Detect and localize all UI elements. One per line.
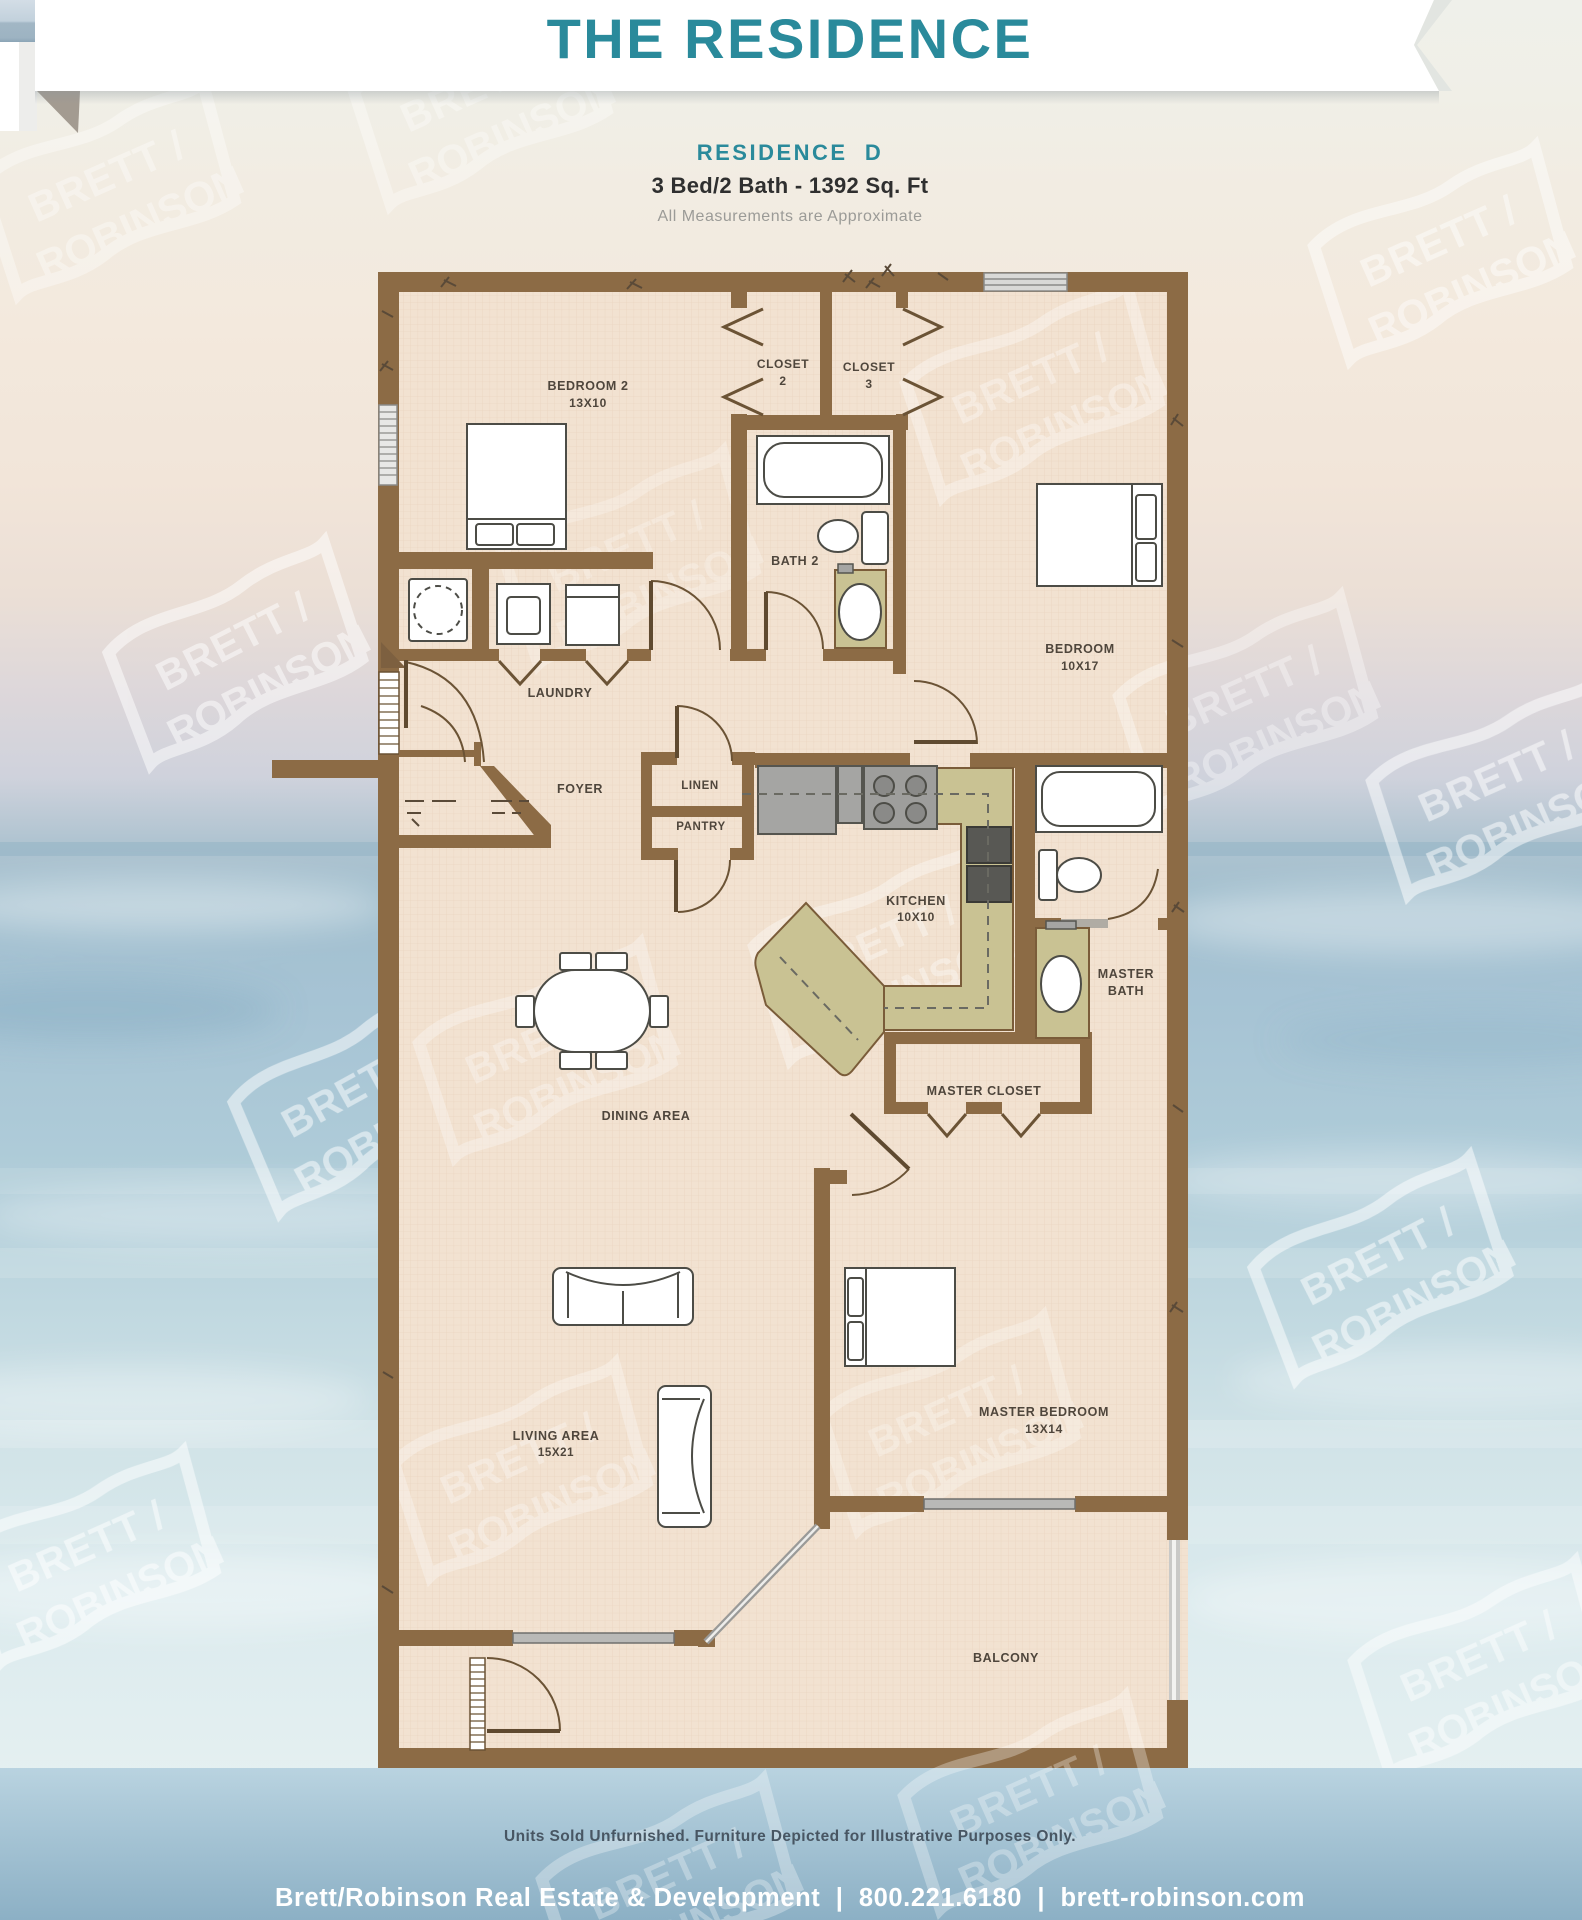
svg-text:3 Bed/2 Bath - 1392 Sq. Ft: 3 Bed/2 Bath - 1392 Sq. Ft	[652, 173, 929, 198]
svg-text:BATH: BATH	[1108, 984, 1144, 998]
svg-text:Brett/Robinson Real Estate & D: Brett/Robinson Real Estate & Development…	[275, 1884, 1305, 1912]
svg-text:MASTER CLOSET: MASTER CLOSET	[927, 1084, 1042, 1098]
svg-text:LAUNDRY: LAUNDRY	[528, 686, 593, 700]
svg-text:KITCHEN: KITCHEN	[886, 894, 946, 908]
svg-text:MASTER: MASTER	[1098, 967, 1154, 981]
svg-text:BEDROOM 2: BEDROOM 2	[547, 379, 628, 393]
svg-text:CLOSET: CLOSET	[757, 357, 809, 371]
svg-text:10X10: 10X10	[897, 910, 935, 924]
svg-text:All Measurements are Approxima: All Measurements are Approximate	[658, 208, 923, 225]
svg-text:LIVING AREA: LIVING AREA	[513, 1429, 600, 1443]
svg-text:10X17: 10X17	[1061, 659, 1099, 673]
svg-text:THE RESIDENCE: THE RESIDENCE	[547, 7, 1034, 70]
svg-text:PANTRY: PANTRY	[676, 821, 726, 833]
svg-text:Units Sold Unfurnished. Furnit: Units Sold Unfurnished. Furniture Depict…	[504, 1828, 1076, 1845]
svg-text:RESIDENCE D: RESIDENCE D	[697, 140, 883, 165]
svg-text:DINING AREA: DINING AREA	[602, 1109, 691, 1123]
svg-text:MASTER BEDROOM: MASTER BEDROOM	[979, 1405, 1109, 1419]
svg-text:15X21: 15X21	[538, 1447, 574, 1459]
svg-text:BATH 2: BATH 2	[771, 554, 819, 568]
svg-text:3: 3	[865, 377, 872, 391]
svg-text:FOYER: FOYER	[557, 782, 603, 796]
svg-text:13X14: 13X14	[1025, 1422, 1063, 1436]
svg-text:CLOSET: CLOSET	[843, 360, 895, 374]
svg-text:LINEN: LINEN	[681, 780, 719, 792]
svg-text:BEDROOM: BEDROOM	[1045, 642, 1114, 656]
svg-text:13X10: 13X10	[569, 396, 607, 410]
svg-text:2: 2	[779, 374, 786, 388]
svg-text:BALCONY: BALCONY	[973, 1651, 1039, 1665]
